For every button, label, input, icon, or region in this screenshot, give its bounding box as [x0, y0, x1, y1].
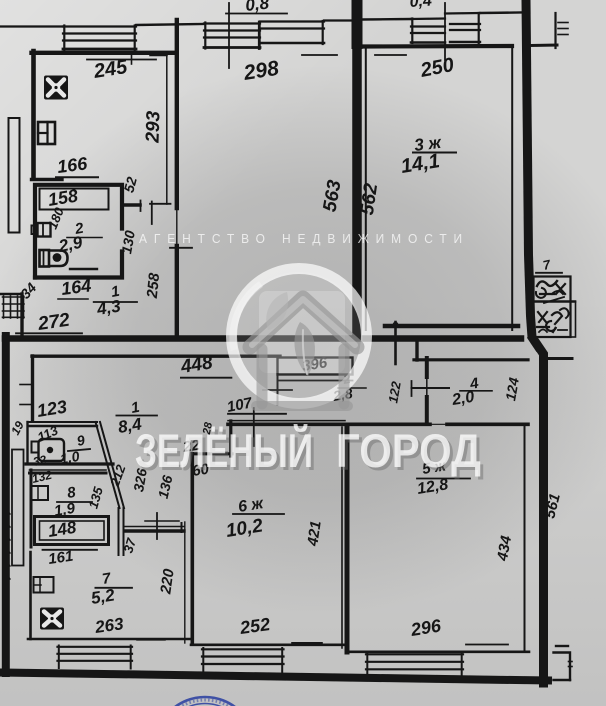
svg-text:5,2: 5,2 [90, 585, 117, 608]
svg-text:293: 293 [142, 110, 164, 144]
svg-text:164: 164 [60, 275, 92, 299]
svg-text:ЗЕЛЁНЫЙ: ЗЕЛЁНЫЙ [135, 424, 313, 477]
svg-text:0,4: 0,4 [409, 0, 432, 11]
svg-text:562: 562 [357, 182, 382, 217]
svg-text:2,0: 2,0 [450, 389, 476, 409]
svg-text:161: 161 [47, 548, 74, 568]
svg-text:ГОРОД: ГОРОД [336, 424, 481, 477]
svg-text:1,9: 1,9 [53, 500, 77, 520]
svg-text:0,8: 0,8 [244, 0, 270, 15]
svg-text:258: 258 [144, 272, 164, 300]
svg-text:1,0: 1,0 [59, 448, 81, 467]
svg-text:252: 252 [238, 614, 272, 638]
svg-text:421: 421 [304, 520, 324, 548]
svg-text:4,3: 4,3 [95, 296, 123, 319]
svg-text:166: 166 [56, 153, 89, 177]
svg-text:АГЕНТСТВО НЕДВИЖИМОСТИ: АГЕНТСТВО НЕДВИЖИМОСТИ [139, 231, 469, 246]
